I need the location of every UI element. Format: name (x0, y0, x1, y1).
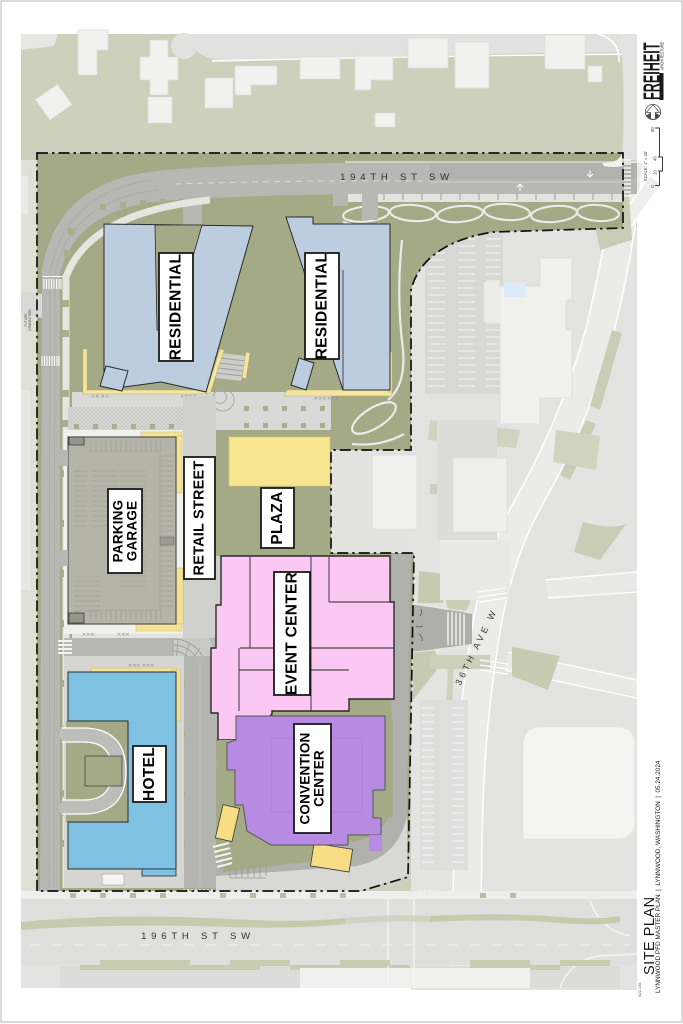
svg-text:194TH ST SW: 194TH ST SW (340, 172, 454, 183)
svg-text:ARCHITECTURE: ARCHITECTURE (660, 42, 665, 70)
svg-text:RESIDENTIAL: RESIDENTIAL (314, 253, 331, 360)
svg-text:HOTEL: HOTEL (141, 747, 158, 801)
svg-text:✕✕✕ ✕✕✕: ✕✕✕ ✕✕✕ (128, 663, 155, 669)
svg-text:LYNNWOOD PFD MASTER PLAN | L: LYNNWOOD PFD MASTER PLAN | LYNNWOOD, WAS… (655, 760, 662, 993)
svg-text:✕✕✕: ✕✕✕ (117, 632, 130, 638)
svg-text:GARAGE: GARAGE (125, 501, 140, 561)
svg-text:RETAIL STREET: RETAIL STREET (192, 461, 208, 576)
svg-text:196TH ST SW: 196TH ST SW (141, 931, 255, 942)
svg-text:40: 40 (653, 156, 658, 161)
svg-text:✕✕ ✕✕: ✕✕ ✕✕ (91, 394, 109, 400)
svg-text:A22-146: A22-146 (638, 983, 642, 997)
svg-text:EVENT CENTER: EVENT CENTER (284, 572, 301, 695)
svg-text:CENTER: CENTER (312, 750, 327, 807)
svg-text:80: 80 (650, 127, 655, 132)
svg-text:SCALE: 1" = 40': SCALE: 1" = 40' (643, 151, 648, 181)
svg-text:PARKING: PARKING (111, 500, 126, 563)
svg-text:20: 20 (653, 170, 658, 175)
svg-text:RESIDENTIAL: RESIDENTIAL (168, 254, 185, 361)
svg-text:CONNECTION: CONNECTION (28, 309, 32, 331)
svg-text:✕✕✕✕✕✕: ✕✕✕✕✕✕ (314, 396, 339, 402)
svg-text:✕✕✕: ✕✕✕ (82, 632, 95, 638)
svg-text:PLAZA: PLAZA (269, 491, 286, 544)
svg-text:CONVENTION: CONVENTION (298, 732, 313, 824)
